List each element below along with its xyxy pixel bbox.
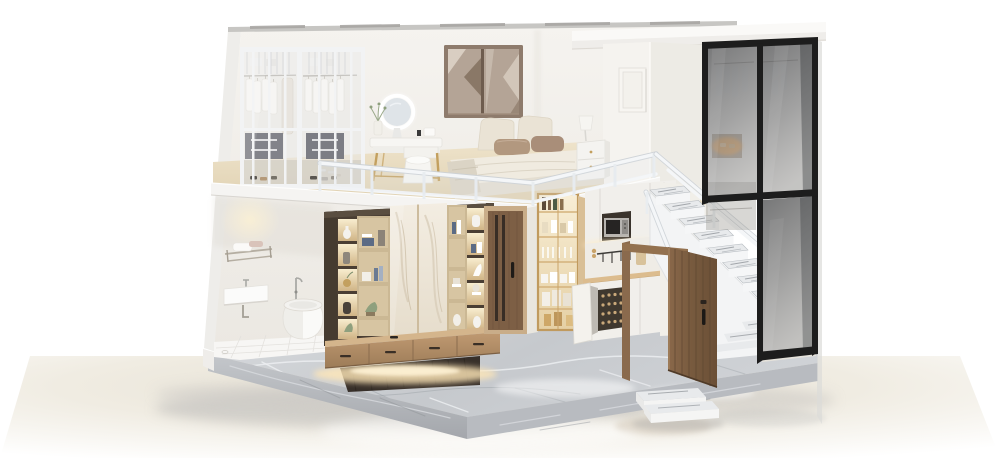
- feature-wall: [313, 203, 500, 392]
- window-mullion: [481, 49, 484, 114]
- wood-shelf-column-right: [447, 205, 467, 332]
- entry-door-handle: [702, 309, 706, 325]
- remote-control: [390, 336, 398, 339]
- loft-render-stage: [0, 0, 1000, 458]
- interior-door: [484, 206, 527, 334]
- mirror-face: [383, 98, 411, 126]
- marble-center-panels: [390, 203, 447, 336]
- door-frame-post: [622, 241, 630, 381]
- lit-shelf-column-left: [338, 219, 357, 339]
- brown-pillow: [531, 136, 564, 152]
- bathtub: [283, 299, 323, 339]
- ceiling-light-glow: [220, 193, 280, 247]
- door-handle: [511, 262, 514, 278]
- bronze-window: [444, 45, 523, 118]
- garlic-string: [592, 249, 596, 253]
- towel-blush: [249, 241, 263, 247]
- wood-shelf-column-left: [357, 216, 390, 336]
- microwave: [604, 218, 629, 237]
- lit-shelf-column-right: [467, 208, 486, 330]
- open-cabinet-door: [572, 283, 592, 344]
- loft-cutaway-render: [0, 0, 1000, 458]
- open-door-leaf: [668, 247, 717, 388]
- long-coat: [282, 78, 293, 134]
- picture-frame: [619, 68, 646, 112]
